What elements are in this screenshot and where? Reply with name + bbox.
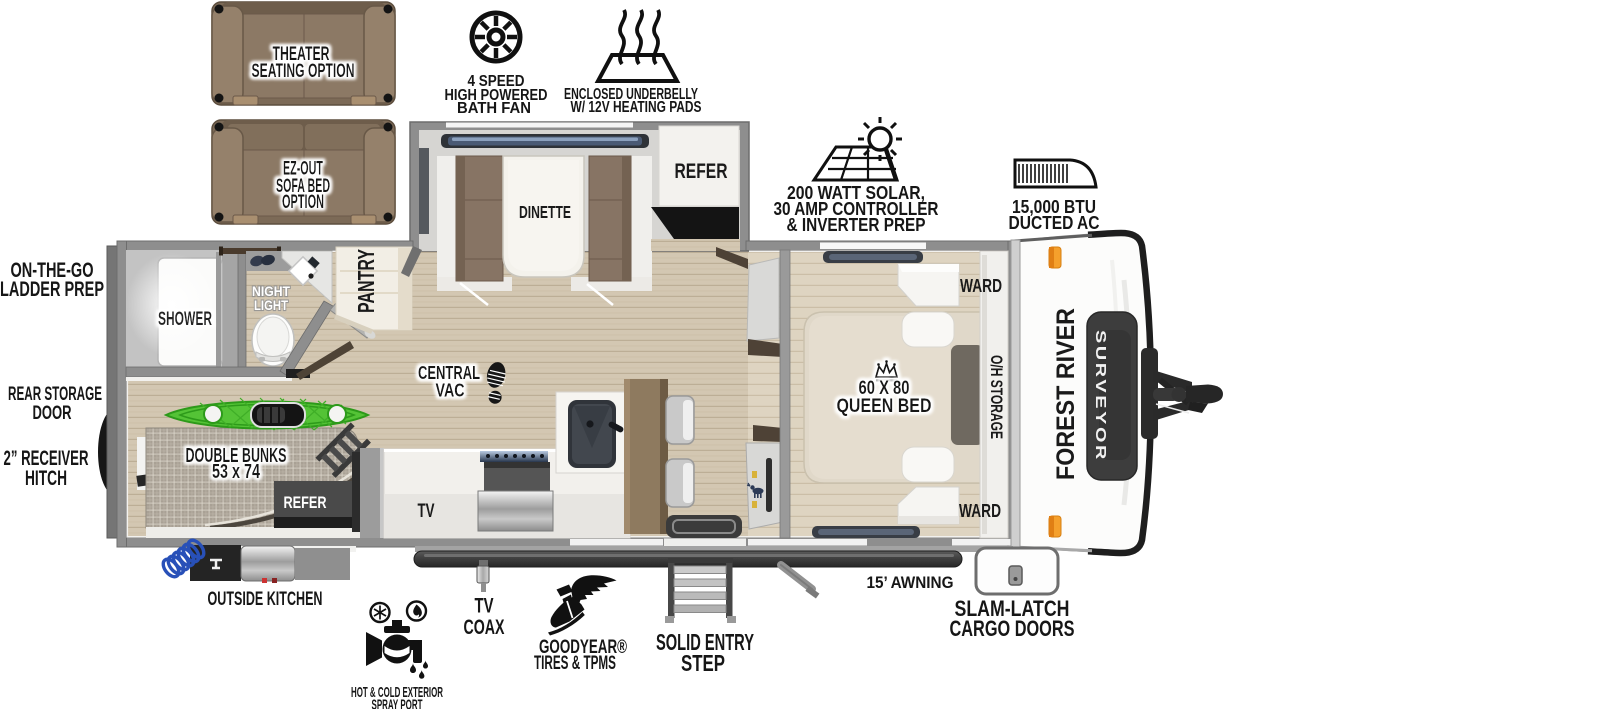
svg-text:OPTION: OPTION [282, 192, 324, 213]
svg-text:LADDER PREP: LADDER PREP [0, 278, 104, 301]
svg-text:PANTRY: PANTRY [353, 249, 379, 313]
svg-text:SURVEYOR: SURVEYOR [1092, 330, 1109, 462]
svg-text:REFER: REFER [284, 493, 327, 512]
svg-text:TIRES & TPMS: TIRES & TPMS [534, 653, 616, 674]
svg-text:DINETTE: DINETTE [519, 202, 571, 222]
svg-text:53 x 74: 53 x 74 [212, 461, 261, 483]
svg-text:15’ AWNING: 15’ AWNING [867, 573, 954, 592]
svg-text:LIGHT: LIGHT [254, 298, 289, 313]
svg-text:WARD: WARD [960, 276, 1002, 296]
svg-text:BATH FAN: BATH FAN [457, 100, 531, 117]
svg-text:DUCTED AC: DUCTED AC [1009, 213, 1100, 233]
svg-text:REAR STORAGE: REAR STORAGE [8, 384, 102, 405]
svg-text:QUEEN BED: QUEEN BED [837, 396, 932, 417]
svg-text:OUTSIDE KITCHEN: OUTSIDE KITCHEN [208, 589, 323, 610]
svg-text:STEP: STEP [681, 650, 725, 676]
svg-text:O/H STORAGE: O/H STORAGE [987, 355, 1006, 439]
svg-text:TV: TV [475, 595, 494, 618]
svg-text:VAC: VAC [436, 381, 465, 401]
svg-text:FOREST RIVER: FOREST RIVER [1052, 308, 1080, 480]
svg-text:COAX: COAX [464, 616, 505, 639]
svg-text:W/ 12V HEATING PADS: W/ 12V HEATING PADS [571, 99, 702, 116]
svg-text:SPRAY PORT: SPRAY PORT [372, 697, 423, 709]
svg-text:& INVERTER PREP: & INVERTER PREP [787, 215, 926, 235]
svg-text:REFER: REFER [675, 160, 728, 183]
svg-text:DOOR: DOOR [33, 403, 72, 424]
svg-text:SHOWER: SHOWER [158, 309, 212, 330]
svg-text:TV: TV [418, 501, 435, 522]
svg-text:NIGHT: NIGHT [252, 284, 291, 299]
svg-text:CARGO DOORS: CARGO DOORS [950, 616, 1075, 641]
svg-text:HITCH: HITCH [25, 467, 67, 490]
svg-text:SEATING OPTION: SEATING OPTION [252, 61, 355, 82]
svg-text:WARD: WARD [959, 501, 1001, 521]
